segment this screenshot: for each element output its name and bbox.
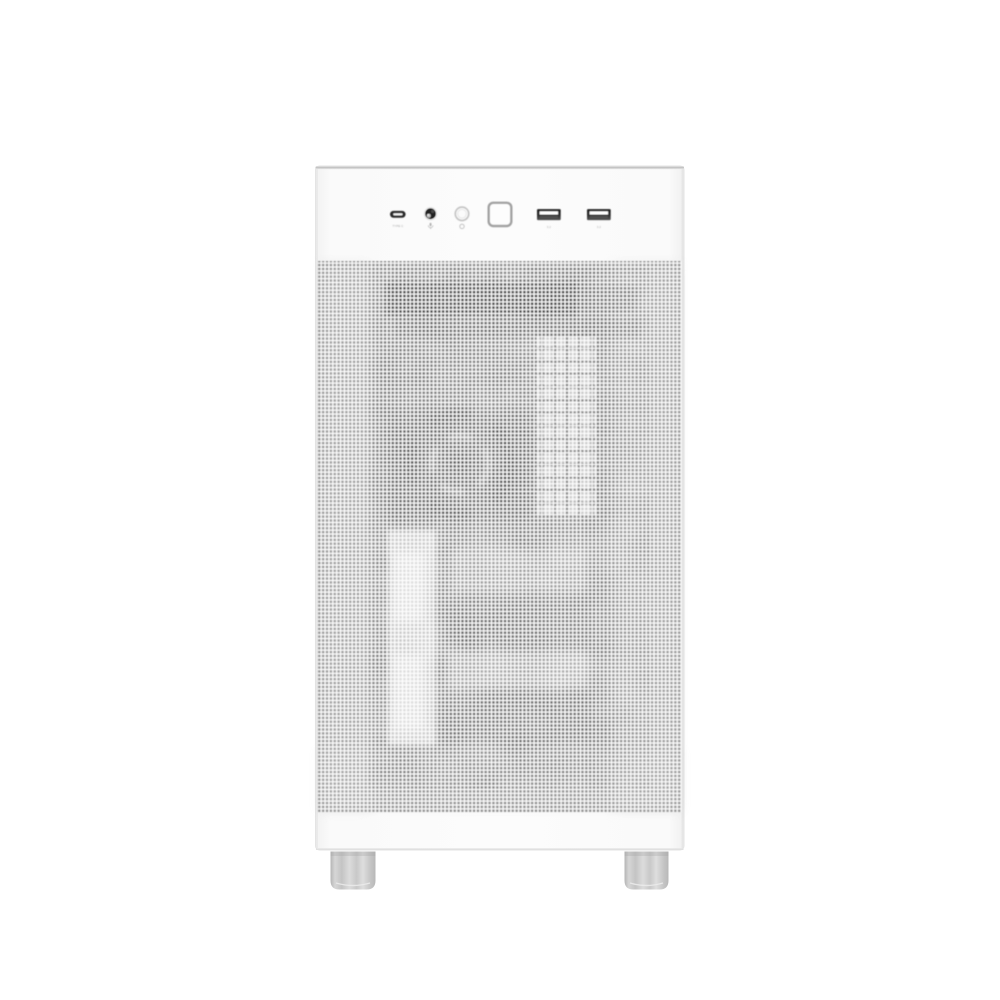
svg-text:3.2: 3.2	[547, 225, 552, 229]
svg-text:TYPE C: TYPE C	[392, 224, 404, 228]
svg-text:3.2: 3.2	[597, 225, 602, 229]
